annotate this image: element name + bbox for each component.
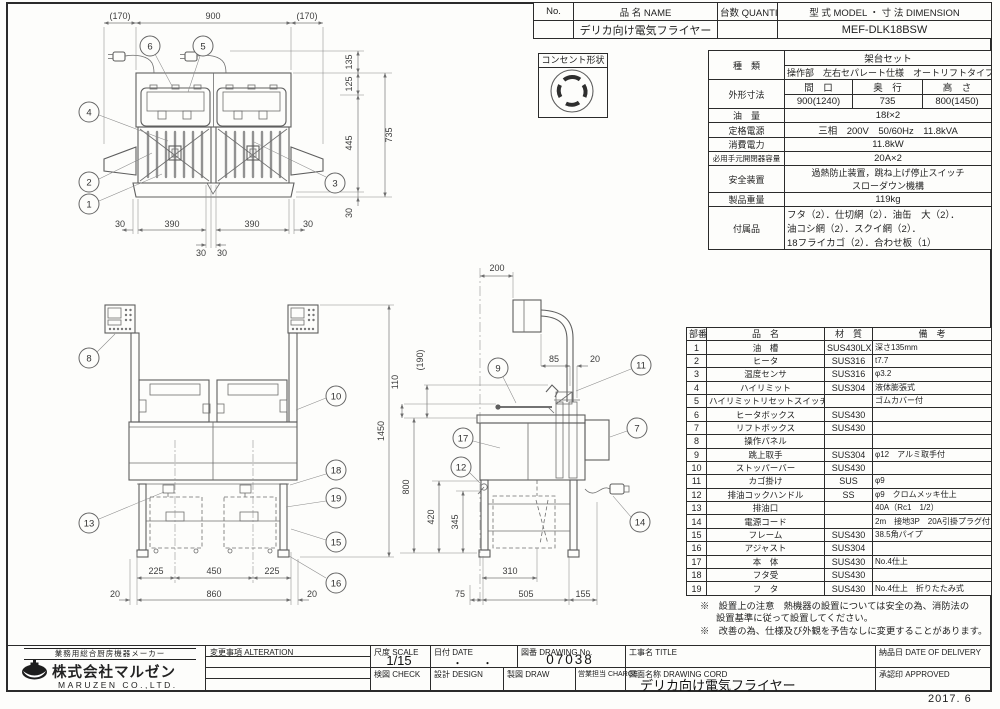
note-line: 設置基準に従って設置してください。 [700, 612, 992, 624]
dim-label: 445 [344, 135, 354, 150]
dim-label: 390 [164, 219, 179, 229]
spec-oil-value: 18ℓ×2 [785, 109, 992, 123]
parts-cell: SUS304 [825, 381, 873, 394]
parts-row: 19フ タSUS430No.4仕上 折りたたみ式 [687, 582, 992, 595]
parts-row: 2ヒータSUS316t7.7 [687, 354, 992, 367]
parts-cell [873, 421, 992, 434]
parts-cell: ストッパーバー [707, 461, 825, 474]
dim-label: (190) [415, 349, 425, 370]
drawing-sheet: (170) 900 (170) 135 125 445 30 735 [0, 0, 1000, 709]
parts-cell [873, 461, 992, 474]
notes: ※ 設置上の注意 熱機器の設置については安全の為、消防法の 設置基準に従って設置… [700, 600, 992, 637]
balloon-label: 16 [331, 579, 342, 590]
spec-power-label: 定格電源 [709, 123, 785, 138]
balloon-label: 10 [331, 392, 342, 403]
company-name-en: MARUZEN CO.,LTD. [58, 680, 178, 690]
outlet-label: コンセント形状 [539, 54, 607, 68]
parts-header-name: 品 名 [707, 328, 825, 341]
drawing-no-value: 07038 [517, 652, 623, 667]
spec-consumption-value: 11.8kW [785, 138, 992, 152]
draw-label: 製図 DRAW [507, 669, 549, 680]
balloon-label: 11 [636, 361, 646, 372]
note-line: ※ 設置上の注意 熱機器の設置については安全の為、消防法の [700, 600, 992, 612]
parts-cell: SUS430 [825, 555, 873, 568]
parts-row: 17本 体SUS430No.4仕上 [687, 555, 992, 568]
parts-cell: 4 [687, 381, 707, 394]
spec-acc-label: 付属品 [709, 207, 785, 250]
header-val-qty [718, 21, 778, 39]
dim-label: (170) [296, 11, 317, 21]
parts-cell: アジャスト [707, 542, 825, 555]
spec-power-value: 三相 200V 50/60Hz 11.8kVA [785, 123, 992, 138]
parts-table: 部番 品 名 材 質 備 考 1油 槽SUS430LX深さ135mm2ヒータSU… [686, 327, 992, 596]
parts-cell [825, 394, 873, 407]
parts-cell [873, 569, 992, 582]
spec-dims-col-w: 間 口 [785, 80, 853, 95]
balloon-label: 7 [634, 424, 639, 435]
spec-switch-label: 必用手元開閉器容量 [709, 152, 785, 166]
balloon-label: 18 [331, 466, 342, 477]
parts-cell: 操作パネル [707, 435, 825, 448]
parts-cell [873, 542, 992, 555]
parts-cell [825, 515, 873, 528]
date-note: 2017. 6 [928, 693, 972, 705]
parts-cell [873, 408, 992, 421]
parts-cell: ハイリミットリセットスイッチ [707, 394, 825, 407]
parts-cell: SUS [825, 475, 873, 488]
dim-label: 75 [455, 589, 465, 599]
parts-cell: SUS316 [825, 368, 873, 381]
balloon-label: 14 [635, 518, 646, 529]
parts-cell: 15 [687, 528, 707, 541]
parts-row: 10ストッパーバーSUS430 [687, 461, 992, 474]
header-col-qty: 台数 QUANTITY [718, 3, 778, 21]
dim-label: 225 [148, 566, 163, 576]
spec-dims-h: 800(1450) [923, 95, 992, 109]
title-block-mid-line [205, 667, 992, 668]
dim-label: 30 [196, 248, 206, 258]
parts-cell: SUS304 [825, 542, 873, 555]
parts-cell: 電源コード [707, 515, 825, 528]
spec-dims-col-d: 奥 行 [853, 80, 923, 95]
dim-label: 505 [518, 589, 533, 599]
parts-row: 15フレームSUS43038.5角パイプ [687, 528, 992, 541]
parts-cell: 16 [687, 542, 707, 555]
parts-cell: 排油口 [707, 502, 825, 515]
parts-row: 13排油口40A（Rc1 1/2） [687, 502, 992, 515]
parts-cell [825, 435, 873, 448]
parts-cell: 5 [687, 394, 707, 407]
panel-buttons [109, 309, 132, 330]
parts-cell: 14 [687, 515, 707, 528]
title-block-divider [503, 667, 504, 690]
parts-cell: No.4仕上 折りたたみ式 [873, 582, 992, 595]
parts-cell [825, 502, 873, 515]
company-name: 株式会社マルゼン [52, 661, 176, 682]
alteration-line [205, 678, 370, 679]
header-col-model: 型 式 MODEL ・ 寸 法 DIMENSION [778, 3, 992, 21]
parts-cell: ヒータボックス [707, 408, 825, 421]
spec-safety-label: 安全装置 [709, 166, 785, 193]
spec-kind-label: 種 類 [709, 51, 785, 80]
parts-cell: 9 [687, 448, 707, 461]
dim-label: 125 [344, 76, 354, 91]
spec-safety-1: 過熱防止装置，跳ね上げ停止スイッチ [785, 166, 992, 180]
parts-row: 5ハイリミットリセットスイッチゴムカバー付 [687, 394, 992, 407]
parts-cell: フ タ [707, 582, 825, 595]
parts-cell: SUS430 [825, 421, 873, 434]
title-label: 工事名 TITLE [629, 647, 677, 658]
parts-cell: 7 [687, 421, 707, 434]
parts-cell: 1 [687, 341, 707, 354]
parts-table-body: 1油 槽SUS430LX深さ135mm2ヒータSUS316t7.73温度センサS… [687, 341, 992, 595]
dim-label: 200 [489, 263, 504, 273]
parts-cell: SUS430LX [825, 341, 873, 354]
parts-cell: SUS430 [825, 461, 873, 474]
parts-cell: リフトボックス [707, 421, 825, 434]
title-block-divider [875, 645, 876, 690]
parts-header-no: 部番 [687, 328, 707, 341]
parts-cell: 3 [687, 368, 707, 381]
parts-cell: No.4仕上 [873, 555, 992, 568]
parts-cell: フタ受 [707, 569, 825, 582]
parts-cell: 温度センサ [707, 368, 825, 381]
parts-cell: SUS304 [825, 448, 873, 461]
dim-label: 20 [110, 589, 120, 599]
parts-cell: φ9 クロムメッキ仕上 [873, 488, 992, 501]
parts-cell: 2 [687, 354, 707, 367]
parts-row: 9跳上取手SUS304φ12 アルミ取手付 [687, 448, 992, 461]
parts-row: 3温度センサSUS316φ3.2 [687, 368, 992, 381]
parts-cell: 深さ135mm [873, 341, 992, 354]
balloon-label: 9 [495, 364, 500, 375]
dim-label: 735 [384, 127, 394, 142]
note-line: ※ 改善の為、仕様及び外観を予告なしに変更することがあります。 [700, 625, 992, 637]
parts-cell: 40A（Rc1 1/2） [873, 502, 992, 515]
parts-row: 1油 槽SUS430LX深さ135mm [687, 341, 992, 354]
parts-cell: 8 [687, 435, 707, 448]
title-block-divider [625, 645, 626, 690]
parts-header-remarks: 備 考 [873, 328, 992, 341]
plan-view: (170) 900 (170) 135 125 445 30 735 [79, 11, 394, 258]
spec-acc-2: 油コシ網（2）．スクイ網（2）． [785, 221, 992, 235]
delivery-label: 納品日 DATE OF DELIVERY [879, 647, 981, 658]
parts-cell: 19 [687, 582, 707, 595]
dim-label: 135 [344, 54, 354, 69]
dim-label: (170) [109, 11, 130, 21]
date-value: ・ ・ [430, 655, 515, 670]
spec-weight-value: 119kg [785, 193, 992, 207]
spec-dims-w: 900(1240) [785, 95, 853, 109]
parts-cell: 2m 接地3P 20A引掛プラグ付 [873, 515, 992, 528]
spec-safety-2: スローダウン機構 [785, 179, 992, 193]
balloon-label: 3 [332, 179, 337, 190]
spec-switch-value: 20A×2 [785, 152, 992, 166]
parts-cell: φ3.2 [873, 368, 992, 381]
outlet-box: コンセント形状 [538, 53, 608, 118]
dim-label: 30 [115, 219, 125, 229]
spec-kind-1: 架台セット [785, 51, 992, 66]
balloon-label: 1 [86, 200, 91, 211]
parts-cell: 液体膨張式 [873, 381, 992, 394]
parts-cell: 38.5角パイプ [873, 528, 992, 541]
spec-weight-label: 製品重量 [709, 193, 785, 207]
title-block-top-line [6, 645, 990, 646]
parts-cell: 10 [687, 461, 707, 474]
dim-label: 390 [244, 219, 259, 229]
spec-acc-1: フタ（2）．仕切網（2）．油缶 大（2）． [785, 207, 992, 222]
parts-cell: ヒータ [707, 354, 825, 367]
parts-cell: 6 [687, 408, 707, 421]
product-name: デリカ向け電気フライヤー [574, 21, 718, 39]
dim-label: 30 [344, 208, 354, 218]
parts-cell: ハイリミット [707, 381, 825, 394]
parts-cell: 13 [687, 502, 707, 515]
model-number: MEF-DLK18BSW [778, 21, 992, 39]
parts-cell: 油 槽 [707, 341, 825, 354]
dim-label: 20 [590, 354, 600, 364]
parts-cell [873, 435, 992, 448]
spec-dims-d: 735 [853, 95, 923, 109]
dim-label: 800 [401, 479, 411, 494]
parts-row: 8操作パネル [687, 435, 992, 448]
parts-row: 16アジャストSUS304 [687, 542, 992, 555]
dim-label: 30 [303, 219, 313, 229]
design-label: 設計 DESIGN [434, 669, 483, 680]
parts-row: 14電源コード2m 接地3P 20A引掛プラグ付 [687, 515, 992, 528]
dim-label: 110 [390, 375, 400, 389]
parts-cell: SS [825, 488, 873, 501]
parts-row: 6ヒータボックスSUS430 [687, 408, 992, 421]
parts-cell: 本 体 [707, 555, 825, 568]
parts-cell: 12 [687, 488, 707, 501]
parts-cell: 18 [687, 569, 707, 582]
spec-oil-label: 油 量 [709, 109, 785, 123]
balloon-label: 5 [200, 42, 205, 53]
approved-label: 承認印 APPROVED [879, 669, 950, 680]
spec-acc-3: 18フライカゴ（2）．合わせ板（1） [785, 235, 992, 250]
balloon-label: 13 [84, 519, 95, 530]
dim-label: 30 [217, 248, 227, 258]
header-col-name: 品 名 NAME [574, 3, 718, 21]
dim-label: 225 [264, 566, 279, 576]
parts-row: 18フタ受SUS430 [687, 569, 992, 582]
parts-cell: SUS430 [825, 528, 873, 541]
check-label: 検図 CHECK [374, 669, 420, 680]
header-table: No. 品 名 NAME 台数 QUANTITY 型 式 MODEL ・ 寸 法… [533, 2, 992, 39]
front-view: 225 450 225 20 860 20 1450 8 10 18 [79, 305, 394, 605]
parts-cell: φ12 アルミ取手付 [873, 448, 992, 461]
parts-cell: SUS430 [825, 569, 873, 582]
maruzen-logo [20, 660, 50, 685]
parts-cell: カゴ掛け [707, 475, 825, 488]
parts-row: 4ハイリミットSUS304液体膨張式 [687, 381, 992, 394]
dim-label: 900 [205, 11, 220, 21]
dim-label: 85 [549, 354, 559, 364]
header-val-no [534, 21, 574, 39]
parts-row: 12排油コックハンドルSSφ9 クロムメッキ仕上 [687, 488, 992, 501]
dim-label: 155 [575, 589, 590, 599]
balloon-label: 17 [458, 434, 469, 445]
balloon-label: 4 [86, 108, 91, 119]
spec-dims-label: 外形寸法 [709, 80, 785, 109]
dim-label: 450 [206, 566, 221, 576]
maker-tagline: 業務用総合厨房機器メーカー [24, 648, 196, 660]
header-col-no: No. [534, 3, 574, 21]
drawing-name-value: デリカ向け電気フライヤー [640, 675, 796, 694]
parts-cell: 17 [687, 555, 707, 568]
spec-dims-col-h: 高 さ [923, 80, 992, 95]
dim-label: 345 [450, 514, 460, 529]
parts-cell: 排油コックハンドル [707, 488, 825, 501]
spec-consumption-label: 消費電力 [709, 138, 785, 152]
parts-cell: 跳上取手 [707, 448, 825, 461]
parts-cell: t7.7 [873, 354, 992, 367]
parts-cell: SUS430 [825, 408, 873, 421]
dim-label: 20 [307, 589, 317, 599]
parts-header-material: 材 質 [825, 328, 873, 341]
dim-label: 860 [206, 589, 221, 599]
parts-cell: SUS430 [825, 582, 873, 595]
parts-cell: φ9 [873, 475, 992, 488]
title-block-divider [205, 645, 206, 690]
title-block-divider [575, 667, 576, 690]
dim-label: 310 [502, 566, 517, 576]
balloon-label: 19 [331, 494, 342, 505]
scale-value: 1/15 [370, 653, 428, 668]
spec-kind-2: 操作部 左右セパレート仕様 オートリフトタイプ [785, 66, 992, 80]
parts-cell: SUS316 [825, 354, 873, 367]
balloon-label: 15 [331, 538, 342, 549]
parts-cell: ゴムカバー付 [873, 394, 992, 407]
alteration-label: 変更事項 ALTERATION [210, 647, 293, 658]
balloon-label: 12 [456, 463, 467, 474]
dim-label: 1450 [376, 421, 386, 441]
dim-label: 420 [426, 509, 436, 524]
panel-buttons [292, 309, 315, 330]
parts-cell: フレーム [707, 528, 825, 541]
balloon-label: 6 [147, 42, 152, 53]
balloon-label: 8 [86, 354, 91, 365]
balloon-label: 2 [86, 178, 91, 189]
parts-row: 11カゴ掛けSUSφ9 [687, 475, 992, 488]
spec-table: 種 類 架台セット 操作部 左右セパレート仕様 オートリフトタイプ 外形寸法 間… [708, 50, 992, 250]
side-view: 200 85 20 (190) 110 800 420 345 3 [390, 263, 651, 605]
parts-cell: 11 [687, 475, 707, 488]
parts-row: 7リフトボックスSUS430 [687, 421, 992, 434]
heater-tubes [148, 132, 280, 177]
